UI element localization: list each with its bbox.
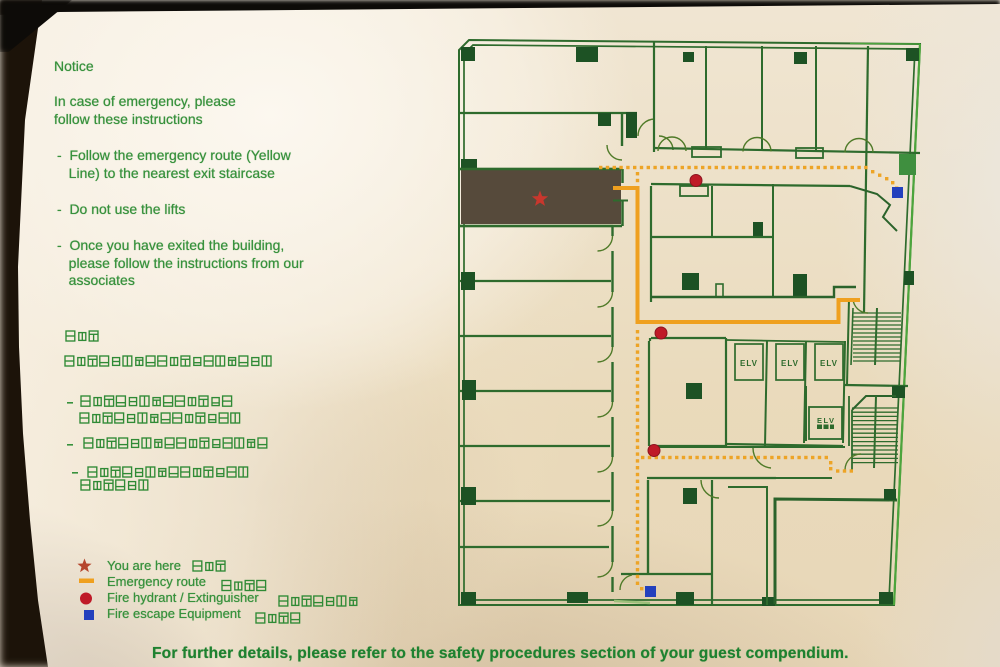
svg-text:ELV: ELV: [820, 359, 838, 368]
svg-text:ELV: ELV: [740, 359, 758, 368]
svg-text:ELV: ELV: [781, 359, 799, 368]
svg-text:ELV: ELV: [817, 416, 836, 425]
